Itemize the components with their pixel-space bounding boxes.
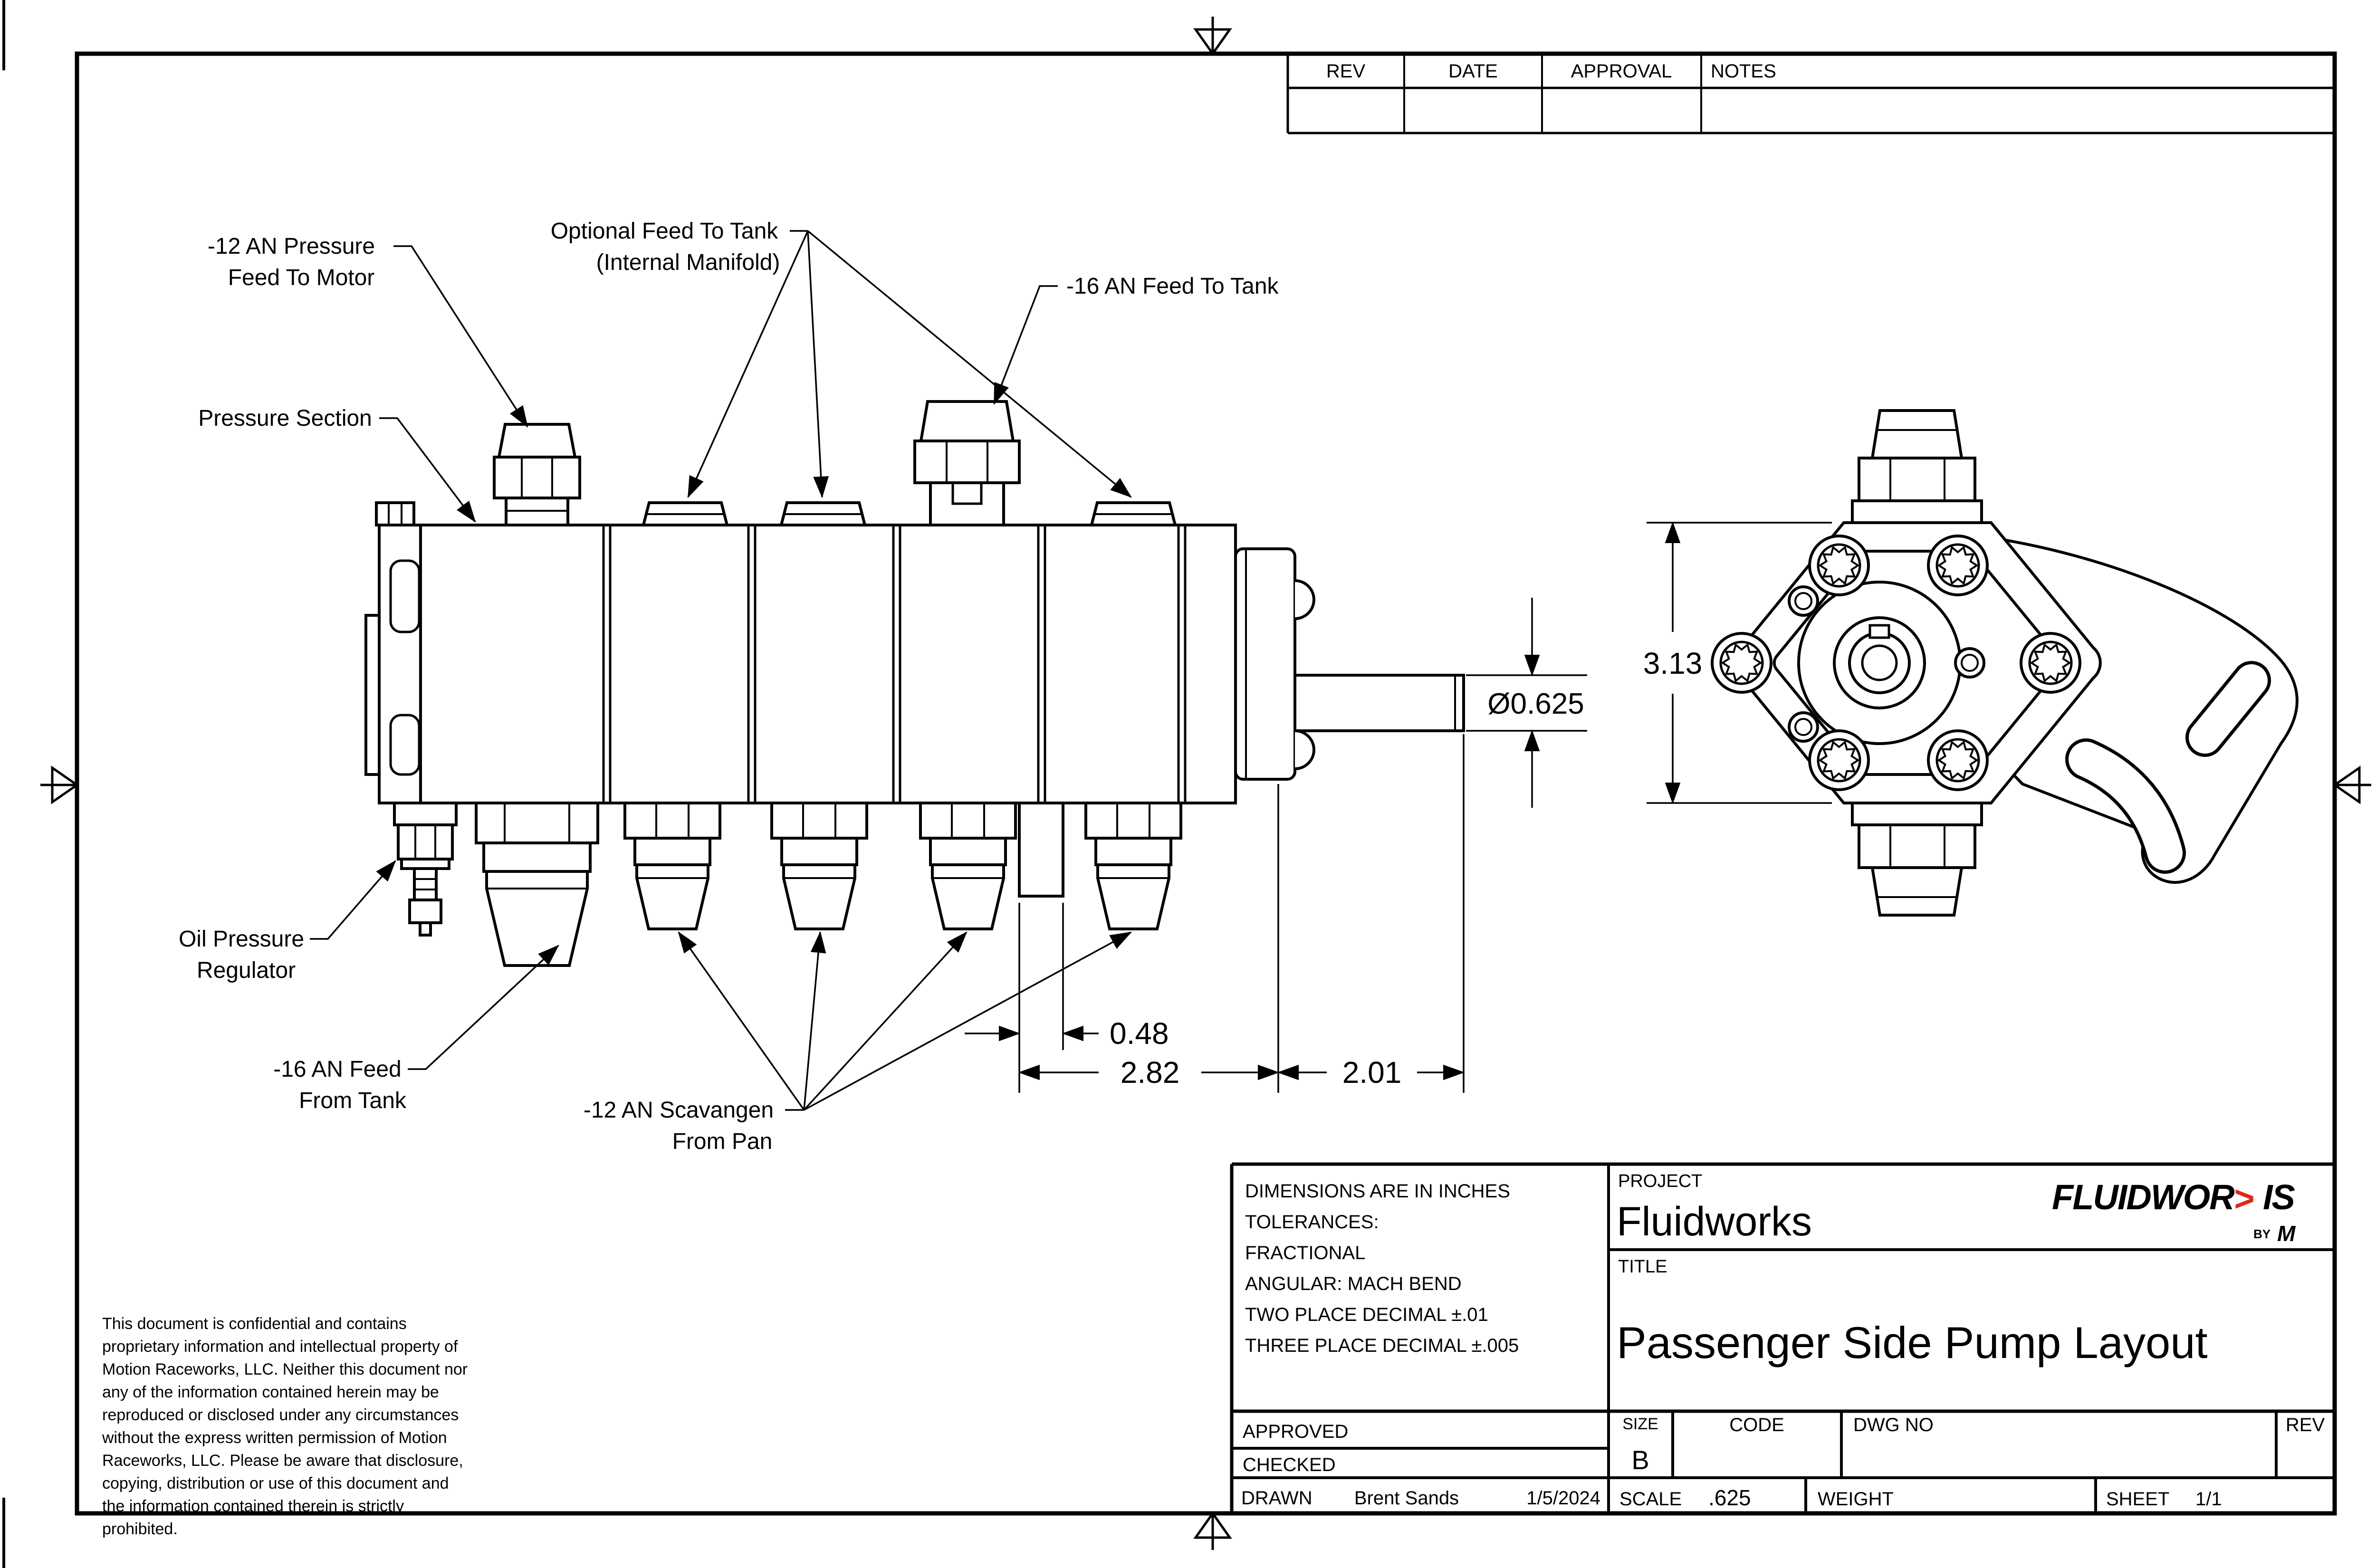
checked-label: CHECKED	[1243, 1454, 1336, 1475]
drawn-by: Brent Sands	[1354, 1488, 1459, 1509]
size-value: B	[1631, 1445, 1649, 1475]
an-fitting-bottom	[1852, 803, 1982, 915]
hex-bolt	[376, 503, 414, 525]
torx-bolt	[1928, 536, 1987, 595]
logo-word-start: FLUIDWOR	[2052, 1177, 2234, 1217]
an12-scavenge-fitting	[625, 803, 720, 929]
tolerance-line: FRACTIONAL	[1245, 1243, 1365, 1263]
callout-oil-pressure-regulator: Oil Pressure	[179, 927, 304, 952]
an12-pressure-fitting	[494, 424, 580, 525]
dim-body-length: 2.82	[1121, 1055, 1180, 1090]
optional-tank-port	[781, 503, 865, 525]
logo-chevron-icon: >	[2233, 1179, 2253, 1218]
callout-oil-pressure-regulator: Regulator	[197, 958, 296, 983]
callout-feed-from-tank: -16 AN Feed	[273, 1057, 401, 1082]
output-shaft	[1295, 675, 1464, 731]
approval-header: APPROVAL	[1571, 61, 1672, 82]
logo-by-text: BY	[2253, 1227, 2271, 1241]
an-fitting-top	[1852, 411, 1982, 523]
logo-by-mark: M	[2277, 1221, 2296, 1246]
dim-pump-height: 3.13	[1643, 646, 1703, 680]
small-screw	[1789, 587, 1818, 615]
dim-tab-width: 0.48	[1110, 1016, 1169, 1051]
callout-optional-feed-tank: (Internal Manifold)	[596, 250, 780, 275]
callout-scavenge: From Pan	[672, 1129, 773, 1154]
drawn-label: DRAWN	[1241, 1488, 1313, 1509]
dwg-no-label: DWG NO	[1853, 1415, 1934, 1435]
drawing-sheet: REV DATE APPROVAL NOTES	[0, 0, 2376, 1568]
scale-value: .625	[1708, 1485, 1751, 1510]
sheet-value: 1/1	[2195, 1489, 2222, 1510]
drawn-date: 1/5/2024	[1526, 1488, 1600, 1509]
an16-tank-fitting	[915, 402, 1019, 525]
drawing-title: Passenger Side Pump Layout	[1617, 1318, 2208, 1367]
date-header: DATE	[1448, 61, 1498, 82]
an12-scavenge-fitting	[920, 803, 1016, 929]
tolerance-line: THREE PLACE DECIMAL ±.005	[1245, 1335, 1519, 1356]
optional-tank-port	[1092, 503, 1175, 525]
tolerance-line: TOLERANCES:	[1245, 1212, 1379, 1233]
project-label: PROJECT	[1618, 1171, 1702, 1191]
revision-table: REV DATE APPROVAL NOTES	[1288, 54, 2335, 133]
torx-bolt	[2021, 633, 2080, 692]
pump-side-view	[366, 402, 1464, 966]
scale-label: SCALE	[1619, 1489, 1682, 1510]
small-screw	[1955, 649, 1984, 677]
optional-tank-port	[643, 503, 727, 525]
pressure-port	[391, 715, 419, 774]
callout-scavenge: -12 AN Scavangen	[584, 1098, 774, 1123]
tolerance-line: TWO PLACE DECIMAL ±.01	[1245, 1304, 1488, 1325]
rev-header: REV	[1326, 61, 1366, 82]
torx-bolt	[1810, 536, 1868, 595]
dim-shaft-diameter: Ø0.625	[1487, 688, 1584, 720]
an12-scavenge-fitting	[772, 803, 867, 929]
pump-end-view	[1712, 411, 2297, 915]
torx-bolt	[1810, 731, 1868, 790]
tolerance-line: DIMENSIONS ARE IN INCHES	[1245, 1181, 1510, 1202]
approved-label: APPROVED	[1243, 1421, 1348, 1442]
datum-mark-right	[2335, 768, 2371, 802]
an16-feed-fitting	[476, 803, 598, 966]
notes-header: NOTES	[1711, 61, 1776, 82]
torx-bolt	[1712, 633, 1771, 692]
rev-label: REV	[2286, 1415, 2325, 1435]
torx-bolt	[1928, 731, 1987, 790]
datum-mark-top	[1196, 17, 1230, 54]
tolerance-line: ANGULAR: MACH BEND	[1245, 1273, 1462, 1294]
pressure-port	[391, 561, 419, 632]
keyway	[1870, 625, 1889, 638]
logo-word-end: IS	[2263, 1177, 2295, 1217]
project-name: Fluidworks	[1617, 1199, 1812, 1244]
callout-pressure-feed-motor: Feed To Motor	[228, 265, 375, 290]
callout-feed-to-tank: -16 AN Feed To Tank	[1066, 274, 1279, 299]
dim-shaft-length: 2.01	[1342, 1055, 1402, 1090]
callout-optional-feed-tank: Optional Feed To Tank	[551, 219, 779, 244]
size-label: SIZE	[1622, 1415, 1658, 1433]
small-screw	[1789, 713, 1818, 741]
fluidworks-logo: FLUIDWOR > IS BY M	[2052, 1177, 2296, 1246]
oil-pressure-regulator	[394, 803, 456, 935]
callout-feed-from-tank: From Tank	[299, 1088, 407, 1113]
an12-scavenge-fitting	[1086, 803, 1181, 929]
datum-mark-left	[40, 768, 77, 802]
callout-pressure-feed-motor: -12 AN Pressure	[208, 234, 375, 259]
mount-tab	[1019, 803, 1063, 896]
confidentiality-note: This document is confidential and contai…	[102, 1312, 497, 1540]
datum-mark-bottom	[1196, 1513, 1230, 1550]
callout-pressure-section: Pressure Section	[198, 406, 372, 431]
title-label: TITLE	[1618, 1257, 1667, 1277]
end-cap	[1236, 549, 1314, 779]
weight-label: WEIGHT	[1818, 1489, 1894, 1510]
code-label: CODE	[1729, 1415, 1784, 1435]
sheet-label: SHEET	[2106, 1489, 2169, 1510]
